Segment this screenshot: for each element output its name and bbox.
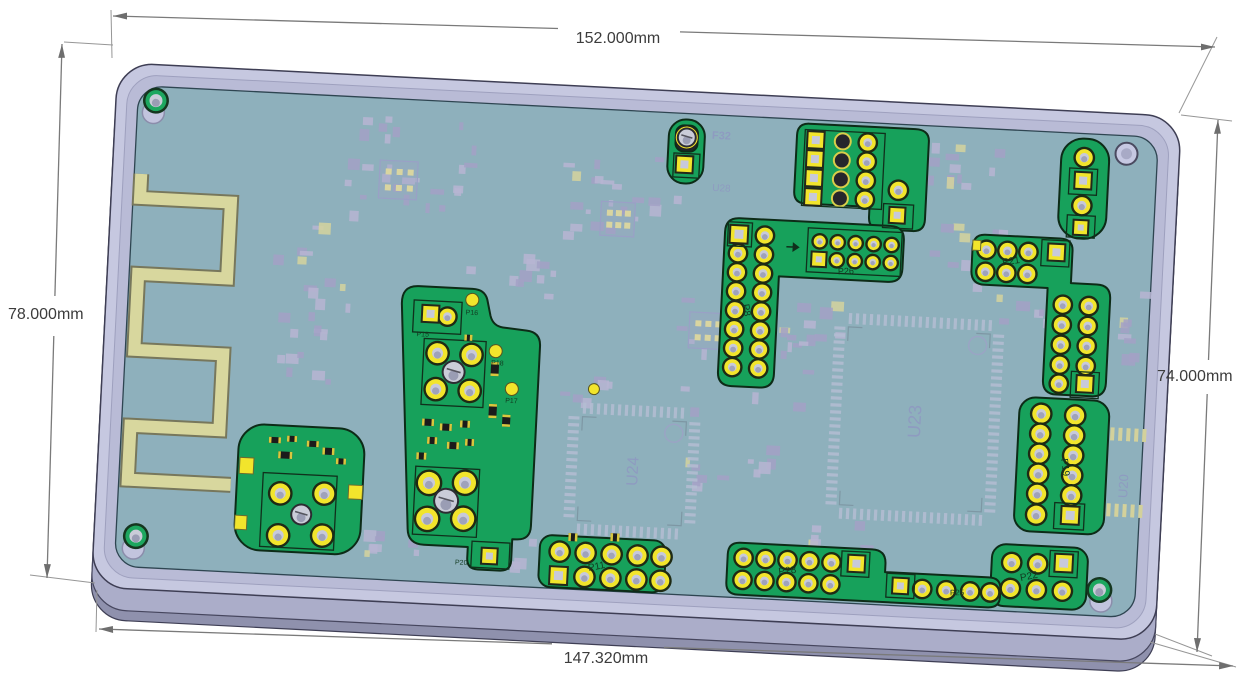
arrow-icon — [58, 44, 65, 58]
arrow-icon — [99, 626, 113, 633]
refdes-f32: F32 — [712, 130, 732, 143]
arrow-icon — [1219, 662, 1233, 669]
refdes-p20: P20 — [455, 559, 468, 567]
arrow-icon — [113, 13, 127, 20]
dimension-line — [680, 32, 1215, 47]
extension-line — [1155, 634, 1212, 656]
arrow-icon — [1214, 120, 1221, 134]
refdes-u24: U24 — [624, 456, 642, 486]
extension-line — [111, 10, 112, 58]
refdes-p16: P16 — [465, 310, 478, 318]
refdes-u23: U23 — [904, 404, 926, 438]
dimension-line — [1209, 120, 1219, 360]
refdes-u20: U20 — [1115, 474, 1131, 499]
dimension-line — [1197, 394, 1207, 652]
cad-viewport: P15 P16 P18 P17 P20 P11 P8 P26 P21 P19 P… — [0, 0, 1250, 700]
refdes-p17: P17 — [505, 398, 518, 406]
refdes-p19: P19 — [1058, 458, 1071, 477]
extension-line — [64, 42, 113, 45]
extension-line — [1181, 115, 1232, 121]
refdes-p15: P15 — [416, 331, 429, 339]
dimension-line — [55, 44, 62, 296]
dimension-top-value[interactable]: 152.000mm — [576, 30, 661, 47]
dimension-line — [113, 16, 558, 29]
arrow-icon — [44, 564, 51, 578]
highlight-module-speaker[interactable] — [233, 423, 365, 555]
dimension-right-value[interactable]: 74.000mm — [1157, 368, 1233, 385]
dimension-left-value[interactable]: 78.000mm — [8, 306, 84, 323]
refdes-p25: P25 — [950, 588, 965, 597]
extension-line — [1179, 37, 1217, 113]
dimension-bottom-value[interactable]: 147.320mm — [564, 650, 649, 667]
refdes-p28: P28 — [778, 565, 797, 578]
refdes-p8: P8 — [739, 303, 752, 317]
pcb-assembly[interactable]: P15 P16 P18 P17 P20 P11 P8 P26 P21 P19 P… — [90, 63, 1182, 673]
refdes-p18: P18 — [491, 360, 504, 368]
extension-line — [30, 575, 95, 583]
refdes-u28: U28 — [712, 183, 731, 195]
dimension-line — [47, 336, 54, 578]
refdes-p26: P26 — [838, 266, 854, 277]
